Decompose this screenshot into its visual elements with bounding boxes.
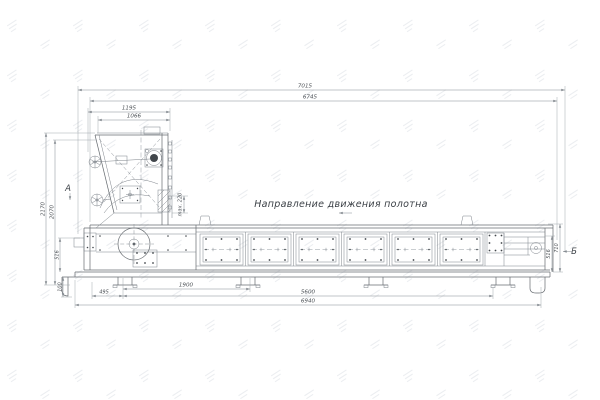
dim-label-hopper-inner: 1066 [127,114,142,120]
dim-label-hopper-outer: 1195 [122,106,137,112]
dim-label-end-offset: 495 [99,290,109,296]
hub-disc [150,154,158,162]
dim-label-overall-height: 2170 [41,201,47,216]
dim-label-ground-clearance: 100 [58,282,64,292]
dim-label-frame-length: 6745 [303,95,318,101]
view-label-b: Б [571,247,577,257]
dim-label-hopper-height: 2070 [50,204,56,219]
dim-label-base-length: 6940 [301,299,316,305]
dim-label-support-span: 5600 [301,290,316,296]
view-label-a: А [64,184,71,194]
dim-label-frame-height-right: 516 [546,249,552,259]
dim-label-gate-opening: max. 220 [178,193,184,217]
dim-label-belt-height: 710 [554,243,560,253]
drawing-page: 7015 6745 1195 1066 2170 2070 516 100 ma… [0,0,600,400]
direction-label: Направление движения полотна [254,199,428,210]
dim-label-leg-pitch: 1900 [179,283,194,289]
engineering-drawing: 7015 6745 1195 1066 2170 2070 516 100 ma… [0,0,600,400]
dim-label-overall-length: 7015 [298,84,313,90]
dim-label-frame-height-left: 516 [55,250,61,260]
